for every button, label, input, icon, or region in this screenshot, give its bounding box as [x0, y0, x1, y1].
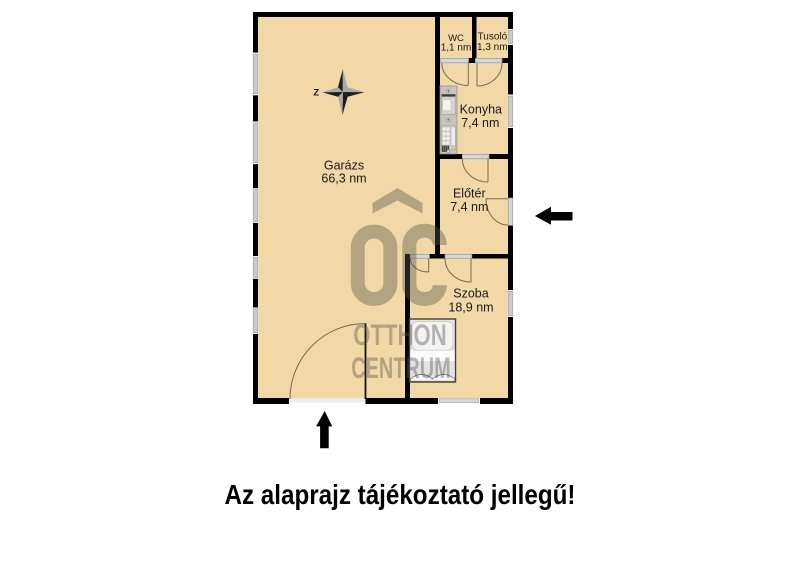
svg-text:7,4 nm: 7,4 nm — [450, 200, 488, 214]
svg-text:CENTRUM: CENTRUM — [351, 352, 451, 385]
svg-text:Z: Z — [313, 88, 319, 99]
svg-text:Az alaprajz tájékoztató jelleg: Az alaprajz tájékoztató jellegű! — [225, 479, 576, 510]
svg-text:1,3 nm: 1,3 nm — [477, 42, 508, 53]
svg-text:Konyha: Konyha — [460, 103, 502, 117]
svg-text:Garázs: Garázs — [324, 159, 364, 173]
svg-text:7,4 nm: 7,4 nm — [461, 116, 499, 130]
svg-text:1,1 nm: 1,1 nm — [441, 43, 472, 54]
svg-text:Előtér: Előtér — [453, 187, 486, 201]
svg-text:Szoba: Szoba — [453, 287, 488, 301]
svg-text:66,3 nm: 66,3 nm — [321, 172, 366, 186]
svg-text:Tusoló: Tusoló — [478, 31, 508, 42]
svg-text:18,9 nm: 18,9 nm — [448, 301, 493, 315]
svg-text:OTTHON: OTTHON — [353, 319, 447, 352]
